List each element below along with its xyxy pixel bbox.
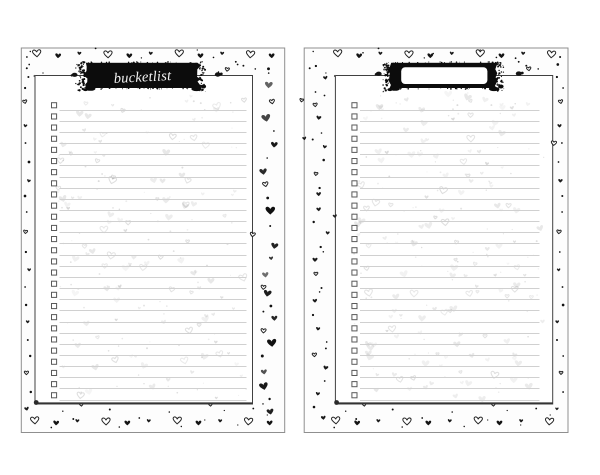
svg-text:bucketlist: bucketlist xyxy=(113,68,172,87)
